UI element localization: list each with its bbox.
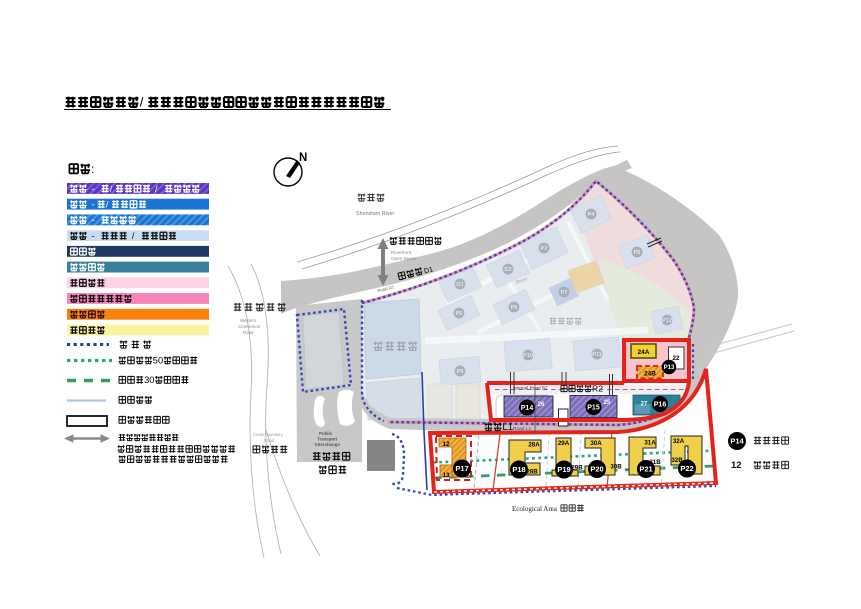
svg-text:29B: 29B bbox=[571, 465, 583, 472]
svg-text:P13: P13 bbox=[664, 365, 675, 371]
svg-text::: : bbox=[91, 162, 94, 176]
svg-text:27: 27 bbox=[641, 402, 648, 408]
svg-text:Road: Road bbox=[264, 438, 275, 443]
svg-text:-: - bbox=[92, 184, 95, 195]
svg-text:30: 30 bbox=[144, 375, 154, 385]
svg-text:/: / bbox=[132, 231, 135, 242]
svg-text:Shenzhen River: Shenzhen River bbox=[356, 211, 395, 217]
svg-text:N: N bbox=[299, 152, 307, 164]
svg-text:D1: D1 bbox=[423, 266, 433, 275]
svg-text:P19: P19 bbox=[557, 465, 570, 474]
svg-text:50: 50 bbox=[153, 355, 163, 365]
svg-text:Internal Road R2: Internal Road R2 bbox=[513, 386, 548, 391]
svg-text:Road L1: Road L1 bbox=[513, 426, 531, 432]
svg-text:24A: 24A bbox=[638, 349, 650, 356]
svg-text:P8: P8 bbox=[634, 250, 641, 256]
svg-text:Open Space: Open Space bbox=[391, 256, 417, 261]
svg-text:P14: P14 bbox=[521, 405, 534, 412]
svg-text:D2: D2 bbox=[504, 267, 511, 273]
svg-text:Ecological Area: Ecological Area bbox=[512, 505, 558, 513]
svg-text:P2: P2 bbox=[541, 246, 548, 252]
svg-text:P16: P16 bbox=[654, 402, 667, 409]
svg-text:Interchange: Interchange bbox=[315, 442, 340, 447]
svg-text:31A: 31A bbox=[644, 440, 656, 447]
svg-text:P6: P6 bbox=[511, 305, 518, 311]
svg-text:-: - bbox=[92, 200, 95, 211]
svg-text:P11: P11 bbox=[592, 352, 602, 358]
svg-text:/: / bbox=[140, 95, 144, 110]
svg-text:P10: P10 bbox=[523, 353, 533, 359]
svg-text:Transport: Transport bbox=[317, 437, 338, 442]
svg-text:24B: 24B bbox=[644, 371, 656, 378]
svg-text:P5: P5 bbox=[456, 311, 463, 317]
svg-text:D1: D1 bbox=[456, 282, 463, 288]
svg-text:26: 26 bbox=[538, 402, 545, 408]
svg-text:12: 12 bbox=[442, 441, 450, 448]
svg-text:R2: R2 bbox=[592, 383, 603, 393]
svg-text:P15: P15 bbox=[587, 405, 600, 412]
svg-text:32A: 32A bbox=[673, 438, 685, 445]
svg-text:30B: 30B bbox=[610, 464, 622, 471]
svg-text:/: / bbox=[155, 184, 158, 195]
svg-text:-: - bbox=[92, 215, 95, 226]
svg-text:13: 13 bbox=[442, 472, 450, 479]
svg-text:Public: Public bbox=[319, 431, 333, 436]
svg-text:L1: L1 bbox=[502, 422, 513, 433]
svg-text:Road: Road bbox=[243, 330, 254, 335]
svg-text:P21: P21 bbox=[639, 465, 652, 474]
svg-text:22: 22 bbox=[673, 355, 680, 362]
svg-text:P7: P7 bbox=[561, 290, 568, 296]
svg-text:P18: P18 bbox=[512, 465, 525, 474]
svg-text:Connection: Connection bbox=[238, 324, 261, 329]
svg-text:29A: 29A bbox=[558, 440, 570, 447]
svg-text:P20: P20 bbox=[590, 465, 603, 474]
svg-text:25: 25 bbox=[604, 400, 611, 406]
svg-text:30A: 30A bbox=[590, 440, 602, 447]
svg-text:P9: P9 bbox=[457, 369, 464, 375]
svg-text:P17: P17 bbox=[455, 464, 468, 473]
svg-text:/: / bbox=[110, 184, 113, 195]
svg-text:Western: Western bbox=[240, 318, 257, 323]
svg-text:12: 12 bbox=[731, 460, 742, 471]
svg-text:Riverfront: Riverfront bbox=[391, 250, 412, 255]
svg-text:-: - bbox=[92, 231, 95, 242]
svg-text:28A: 28A bbox=[528, 442, 540, 449]
svg-text:/: / bbox=[106, 200, 109, 211]
svg-text:P4: P4 bbox=[588, 212, 595, 218]
svg-text:P14: P14 bbox=[730, 437, 744, 446]
svg-text:P22: P22 bbox=[680, 464, 693, 473]
svg-text:Cross-boundary: Cross-boundary bbox=[253, 432, 284, 437]
svg-text:28B: 28B bbox=[526, 469, 538, 476]
svg-text:P12: P12 bbox=[662, 318, 672, 324]
